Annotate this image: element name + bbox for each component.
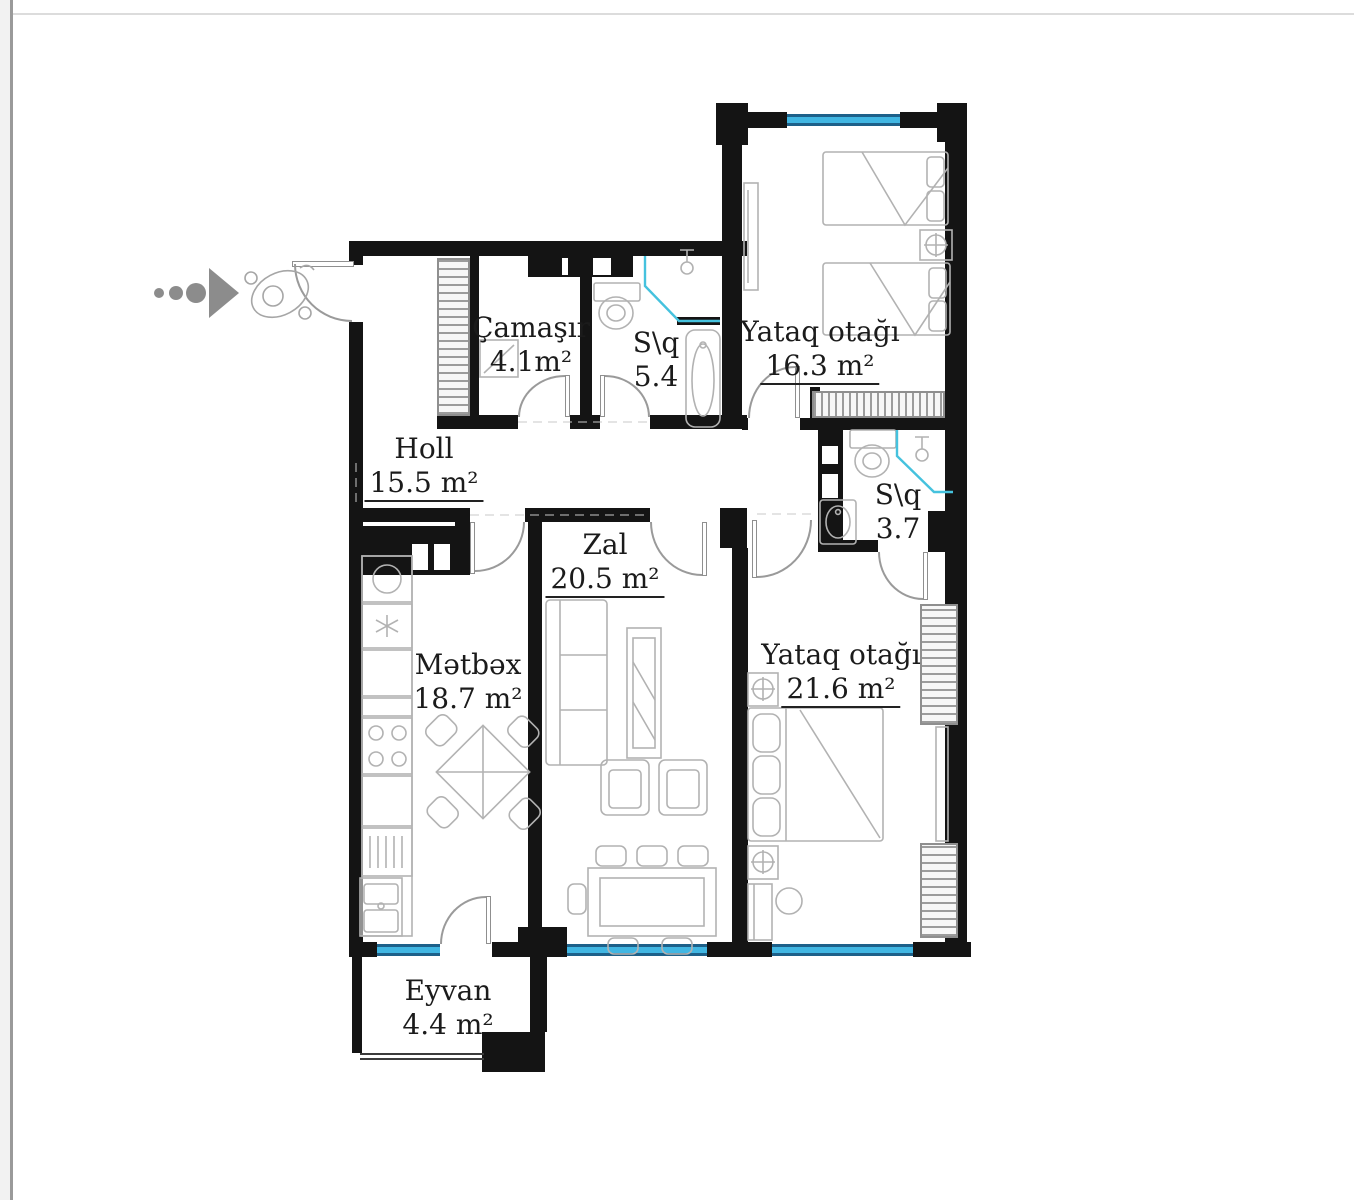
shower-enclosure: [645, 256, 720, 321]
room-label-bedroom1: Yataq otağı 16.3 m²: [740, 315, 899, 385]
toilet: [594, 283, 640, 329]
tv-unit: [627, 628, 661, 758]
room-name: Yataq otağı: [740, 315, 899, 349]
room-name: Yataq otağı: [761, 638, 920, 672]
room-label-metbex: Mətbəx 18.7 m²: [408, 648, 527, 715]
room-area: 16.3 m²: [760, 349, 879, 386]
dresser: [748, 884, 802, 940]
floor-plan-page: Çamaşır 4.1m² S\q 5.4 Yataq otağı 16.3 m…: [0, 0, 1354, 1200]
room-label-sq37: S\q 3.7: [871, 478, 926, 545]
kitchen-sink: [360, 878, 402, 936]
sofa: [546, 600, 607, 765]
nightstand: [920, 230, 952, 260]
room-label-zal: Zal 20.5 m²: [545, 528, 664, 598]
arrow-head: [209, 268, 239, 318]
room-area: 4.1m²: [485, 345, 577, 379]
room-label-holl: Holl 15.5 m²: [364, 432, 483, 502]
room-area: 18.7 m²: [408, 682, 527, 716]
builtin-cabinet: [744, 183, 758, 290]
room-name: Eyvan: [397, 974, 498, 1008]
room-area: 4.4 m²: [397, 1008, 498, 1042]
room-area: 20.5 m²: [545, 562, 664, 599]
arrow-dot: [169, 286, 183, 300]
toilet: [850, 430, 896, 477]
room-name: Zal: [545, 528, 664, 562]
armchair: [601, 760, 649, 815]
room-area: 21.6 m²: [781, 672, 900, 709]
bed-single-1: [823, 152, 948, 225]
furniture-layer: [0, 0, 1354, 1200]
kitchen-counter: [362, 556, 412, 936]
room-area: 15.5 m²: [364, 466, 483, 503]
bathtub: [686, 330, 720, 427]
room-name: S\q: [871, 478, 926, 512]
person-figure: [244, 261, 317, 326]
room-label-eyvan: Eyvan 4.4 m²: [397, 974, 498, 1041]
room-name: Çamaşır: [472, 311, 590, 345]
arrow-dot: [154, 288, 164, 298]
mirror-panel: [936, 727, 948, 841]
nightstand: [748, 846, 778, 879]
room-name: Holl: [364, 432, 483, 466]
room-area: 3.7: [871, 512, 926, 546]
room-name: S\q: [629, 326, 684, 360]
room-label-bedroom2: Yataq otağı 21.6 m²: [761, 638, 920, 708]
room-label-sq54: S\q 5.4: [629, 326, 684, 393]
shower-head: [680, 250, 694, 274]
double-bed: [748, 708, 883, 841]
sink: [820, 500, 856, 544]
dining-table: [568, 846, 716, 954]
armchair: [659, 760, 707, 815]
shower-head: [915, 437, 929, 461]
arrow-dot: [186, 283, 206, 303]
room-label-camasir: Çamaşır 4.1m²: [472, 311, 590, 378]
room-name: Mətbəx: [408, 648, 527, 682]
room-area: 5.4: [629, 360, 684, 394]
